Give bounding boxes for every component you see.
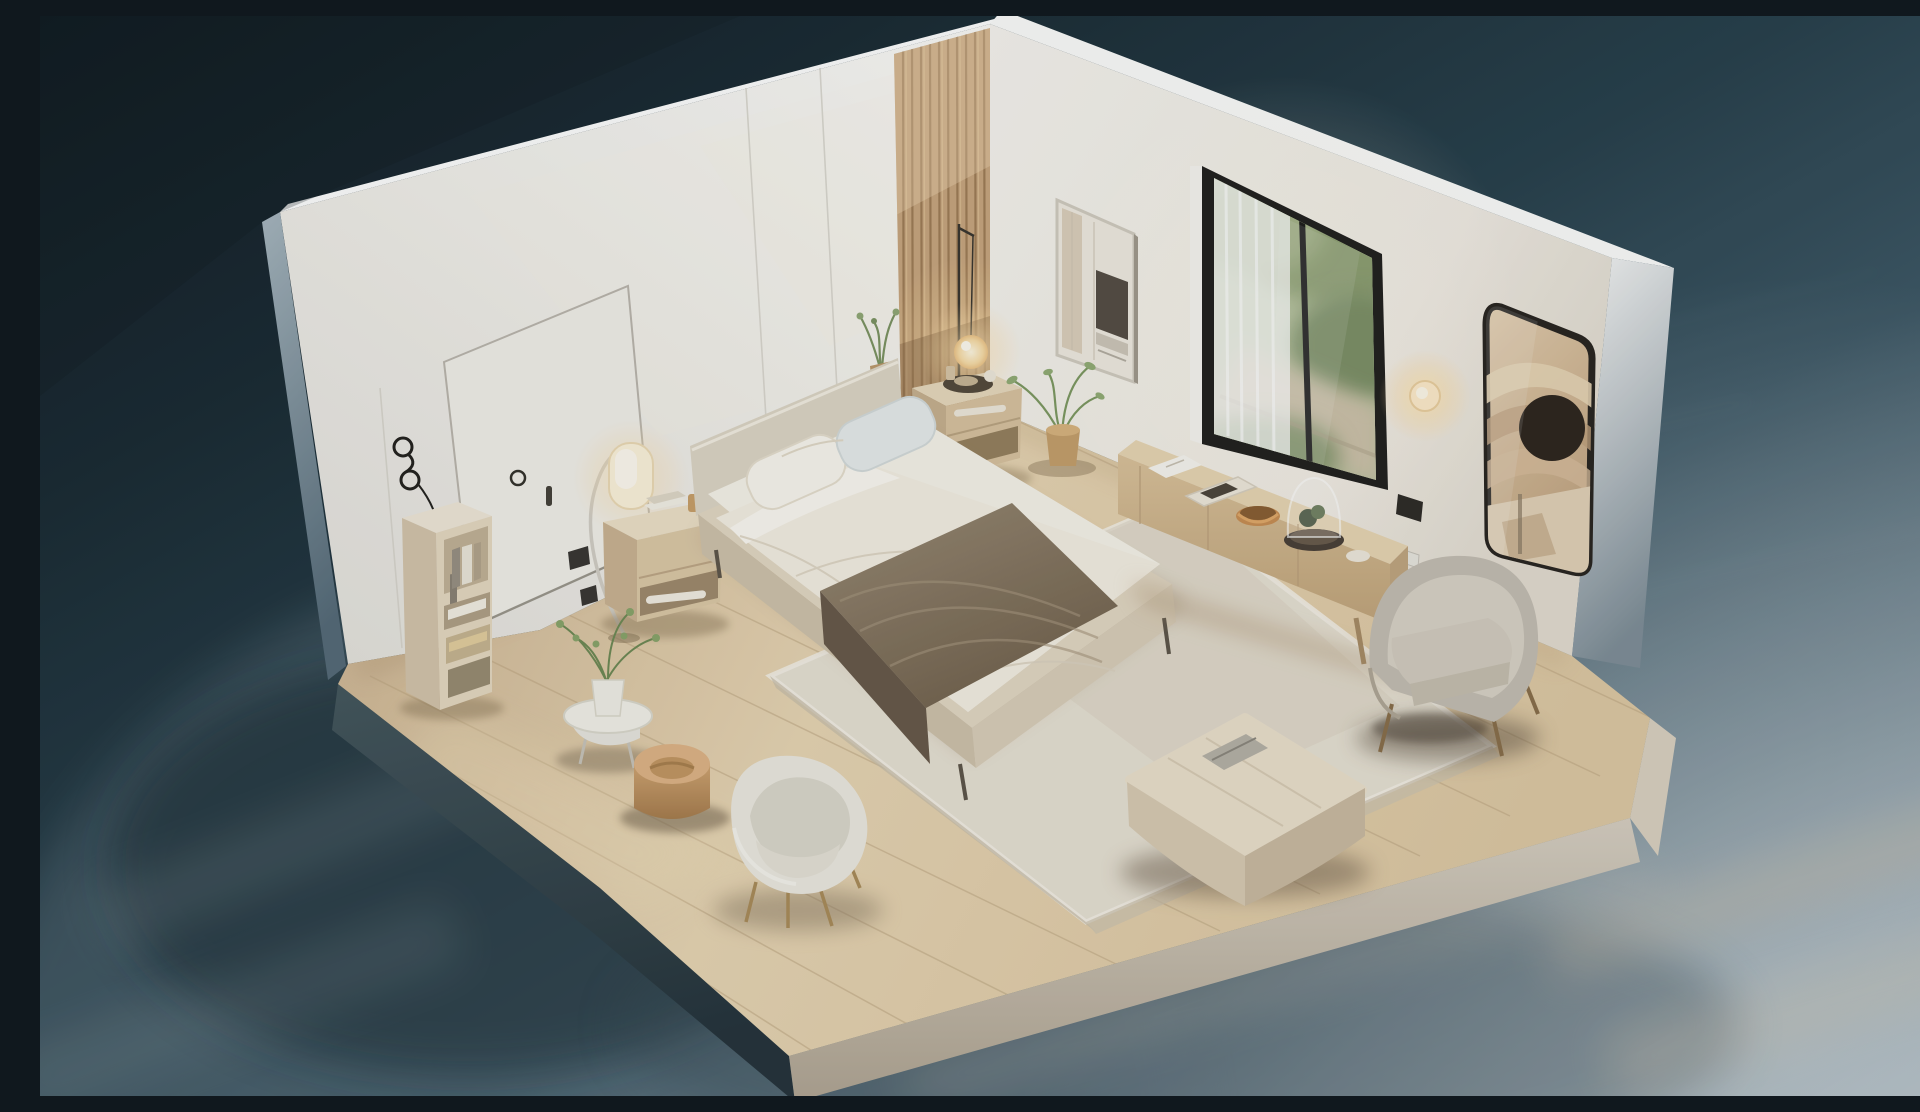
light-effects [40, 16, 1920, 1096]
bedroom-scene: Isometric cutaway 3D render of a minimal… [40, 16, 1920, 1096]
